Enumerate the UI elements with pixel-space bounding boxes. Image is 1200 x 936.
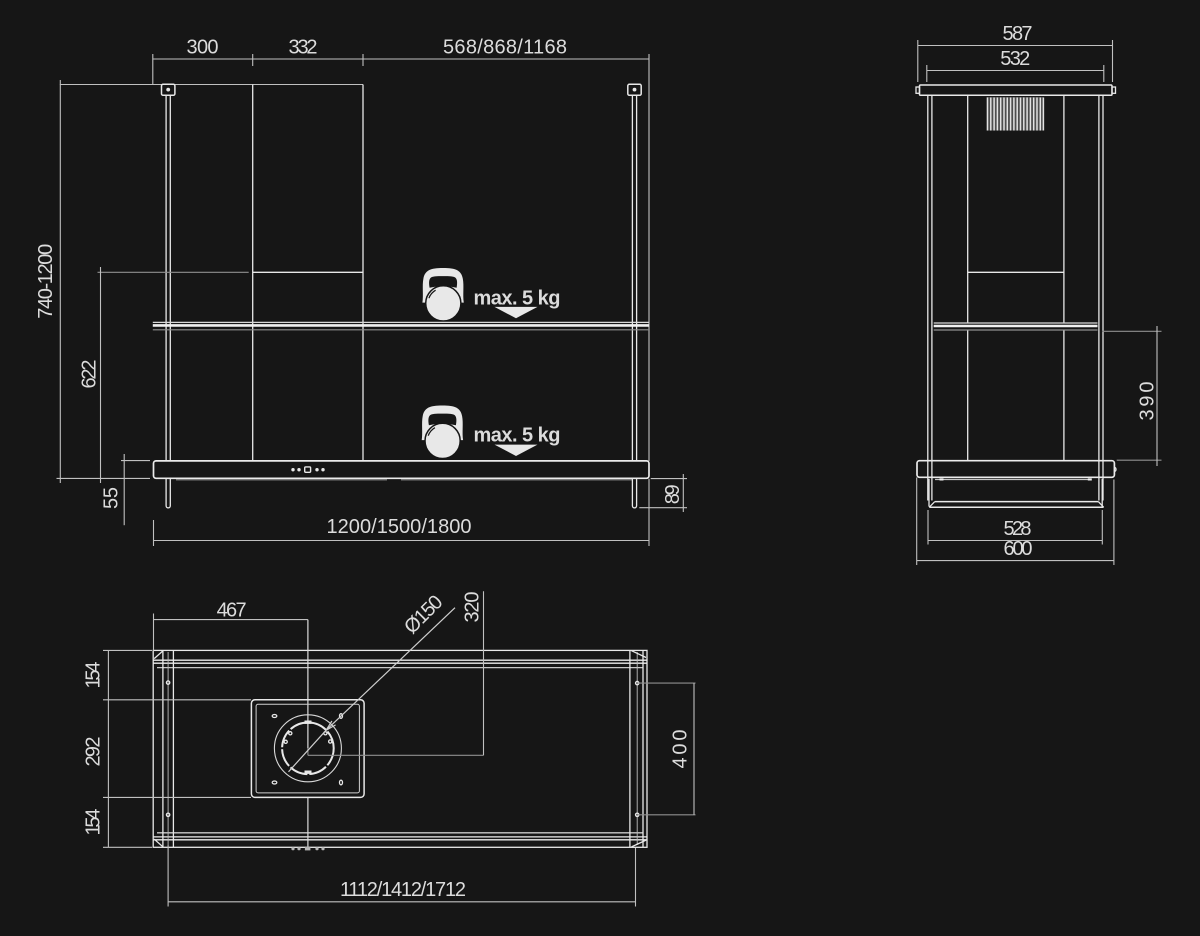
svg-text:467: 467 (217, 600, 247, 622)
svg-text:390: 390 (1137, 382, 1159, 421)
svg-text:55: 55 (101, 487, 123, 509)
svg-text:89: 89 (662, 484, 684, 504)
svg-text:740-1200: 740-1200 (35, 244, 57, 319)
svg-text:292: 292 (83, 737, 105, 767)
svg-text:1112/1412/1712: 1112/1412/1712 (340, 879, 466, 901)
svg-text:320: 320 (462, 592, 484, 623)
svg-text:622: 622 (79, 360, 101, 389)
svg-text:568/868/1168: 568/868/1168 (443, 37, 567, 59)
svg-text:154: 154 (83, 809, 105, 836)
svg-text:528: 528 (1004, 518, 1032, 540)
svg-text:600: 600 (1004, 538, 1033, 560)
svg-text:max. 5 kg: max. 5 kg (474, 425, 561, 447)
svg-text:1200/1500/1800: 1200/1500/1800 (327, 516, 472, 538)
svg-text:532: 532 (1000, 48, 1030, 70)
svg-text:400: 400 (670, 730, 692, 769)
svg-text:max. 5 kg: max. 5 kg (474, 288, 561, 310)
svg-text:587: 587 (1003, 23, 1033, 45)
svg-text:332: 332 (289, 37, 318, 59)
svg-text:300: 300 (187, 37, 219, 59)
svg-text:154: 154 (83, 662, 105, 689)
